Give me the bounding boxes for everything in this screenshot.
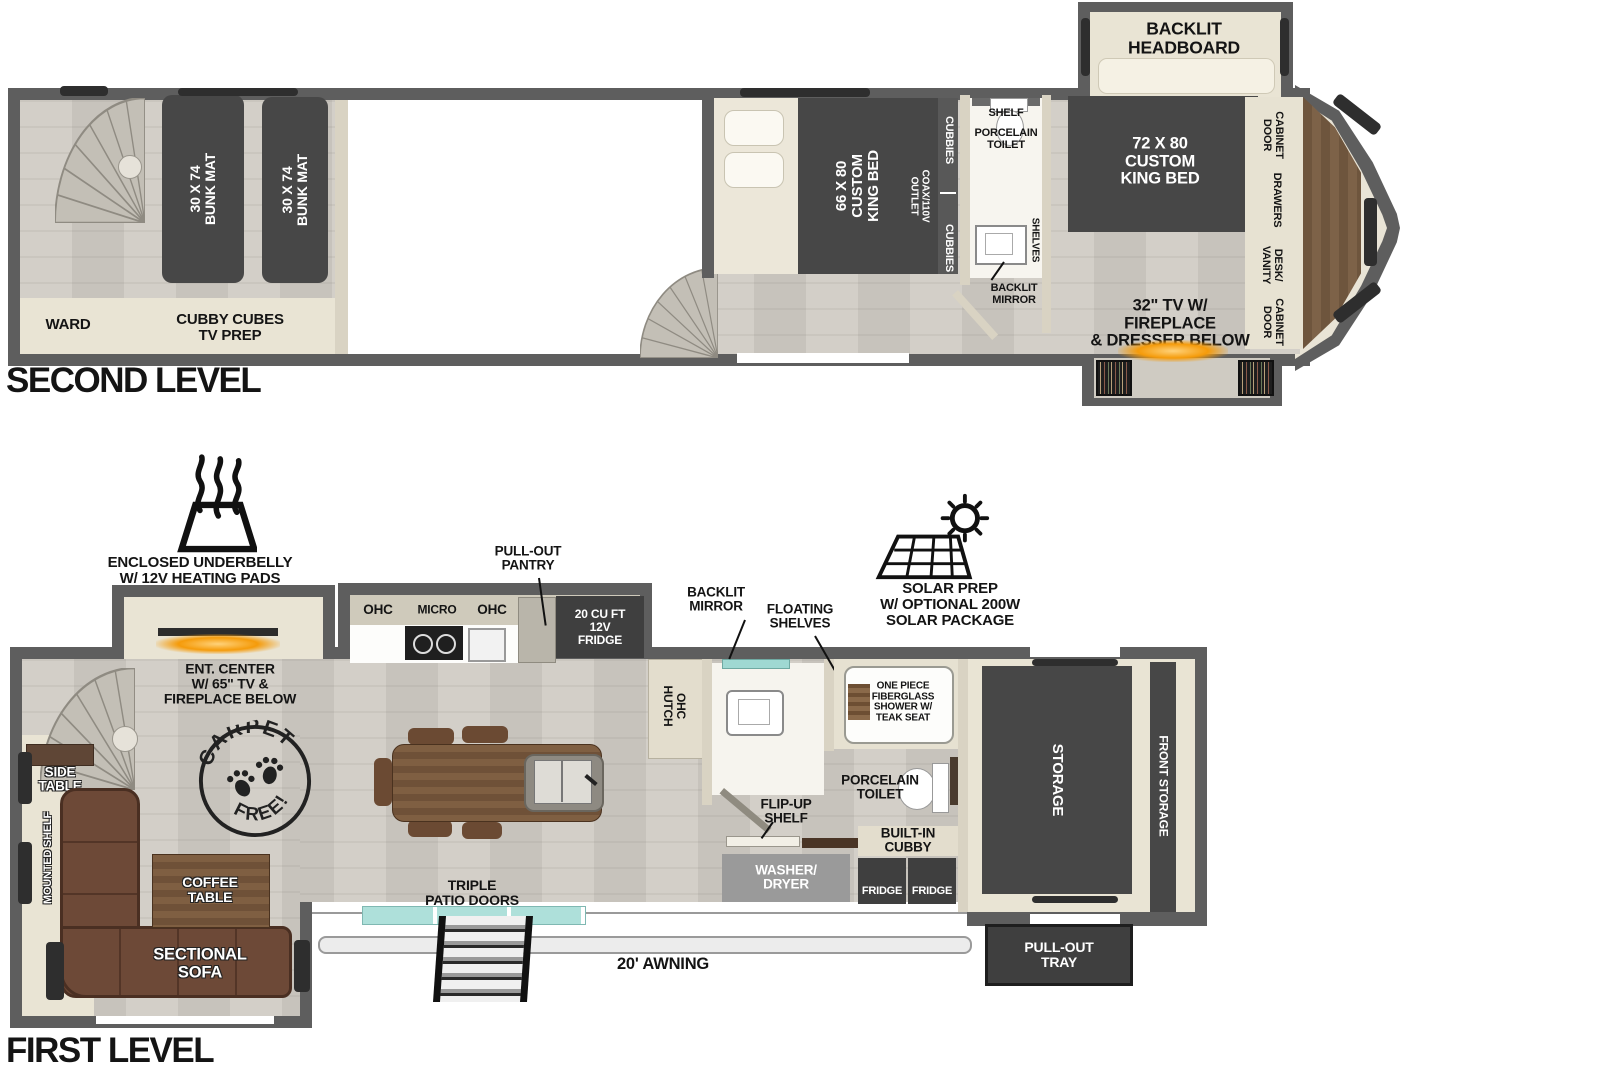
left-window-2	[18, 842, 32, 904]
wardrobe-right	[1238, 360, 1274, 396]
side-table	[26, 744, 94, 766]
mounted-shelf-label: MOUNTED SHELF	[43, 798, 55, 918]
storage-top-opening	[1030, 647, 1120, 657]
fl-stairs-knob	[112, 726, 138, 752]
island-sink-basin	[534, 760, 592, 804]
sectional-sofa-label: SECTIONAL SOFA	[153, 946, 247, 981]
underbelly-label: ENCLOSED UNDERBELLY W/ 12V HEATING PADS	[108, 555, 293, 587]
teak-seat	[848, 684, 870, 720]
built-in-cubby-label: BUILT-IN CUBBY	[881, 827, 935, 856]
ent-center-label: ENT. CENTER W/ 65" TV & FIREPLACE BELOW	[164, 662, 296, 707]
cooktop-burner-2	[436, 634, 456, 654]
left-window-1	[18, 752, 32, 804]
island-sink-divider	[561, 760, 563, 802]
sl-bath-right-wall	[1042, 95, 1051, 333]
storage-bottom-opening	[1030, 914, 1120, 924]
wardrobe-left	[1096, 360, 1132, 396]
dining-chair-top-1	[408, 728, 454, 745]
ward-label: WARD	[45, 317, 90, 333]
floorplan-canvas: 30 X 74 BUNK MAT 30 X 74 BUNK MAT WARD C…	[0, 0, 1600, 1079]
dining-chair-bottom-1	[408, 820, 452, 837]
micro-label: MICRO	[418, 604, 457, 617]
storage-top-slat	[1032, 659, 1118, 666]
ohc-left-label: OHC	[363, 603, 392, 617]
coffee-table-label: COFFEE TABLE	[182, 875, 238, 905]
sl-bath-left-wall	[960, 95, 970, 285]
bunk-stairs-knob	[118, 155, 142, 179]
cubby-cubes-label: CUBBY CUBES TV PREP	[176, 312, 284, 344]
shower-label: ONE PIECE FIBERGLASS SHOWER W/ TEAK SEAT	[872, 682, 934, 725]
dining-chair-bottom-2	[462, 822, 502, 839]
bunk-room-right-wall	[335, 100, 348, 354]
sl-backlit-mirror-label: BACKLIT MIRROR	[991, 283, 1038, 307]
king-bed-label: 66 X 80 CUSTOM KING BED	[834, 131, 882, 241]
bunk-mat-2-label: 30 X 74 BUNK MAT	[280, 135, 310, 245]
king-room-left-wall	[702, 100, 714, 278]
coax-outlet-label: COAX/110V OUTLET	[908, 160, 929, 232]
front-storage-label: FRONT STORAGE	[1157, 721, 1170, 851]
fl-right-wall	[1195, 647, 1207, 926]
pullout-pantry-label: PULL-OUT PANTRY	[495, 545, 562, 574]
cubby-divider	[940, 192, 956, 194]
cubbies-top-label: CUBBIES	[942, 105, 954, 175]
fridge-12v-label: 20 CU FT 12V FRIDGE	[575, 608, 625, 646]
drawers-label: DRAWERS	[1270, 165, 1282, 235]
vanity-mirror	[722, 659, 790, 669]
cubby-shelf	[802, 838, 858, 848]
king-pillow-1	[724, 110, 784, 146]
sl-door-opening	[737, 353, 909, 363]
cubbies-bottom-label: CUBBIES	[942, 213, 954, 283]
first-level-title: FIRST LEVEL	[6, 1032, 213, 1069]
bunk-window-2	[178, 88, 298, 96]
fridge-right-label: FRIDGE	[912, 886, 952, 898]
sl-shelves-label: SHELVES	[1029, 208, 1040, 272]
flip-up-shelf-label: FLIP-UP SHELF	[760, 798, 811, 827]
sofa-window-1	[46, 942, 64, 1000]
kitchen-sink	[468, 628, 506, 662]
pantry-unit	[518, 597, 556, 663]
floating-shelves-label: FLOATING SHELVES	[767, 603, 833, 632]
headboard-pillow	[1098, 58, 1275, 94]
storage-partition	[958, 659, 968, 912]
triple-patio-doors-label: TRIPLE PATIO DOORS	[425, 878, 519, 908]
second-level-title: SECOND LEVEL	[6, 362, 260, 399]
bunk-mat-1-label: 30 X 74 BUNK MAT	[188, 134, 218, 244]
towel-bar	[950, 757, 958, 805]
cooktop-burner-1	[413, 634, 433, 654]
heated-underbelly-icon	[165, 452, 257, 556]
fl-toilet-label: PORCELAIN TOILET	[841, 774, 919, 803]
sl-bath-sink-basin	[985, 233, 1013, 255]
fl-toilet-tank	[932, 763, 949, 813]
headboard-window-left	[1081, 18, 1090, 76]
fl-backlit-mirror-label: BACKLIT MIRROR	[687, 586, 745, 615]
entry-steps	[433, 916, 533, 1002]
awning-label: 20' AWNING	[617, 956, 709, 974]
sl-shelf-label: SHELF	[988, 108, 1023, 120]
sl-left-wall	[8, 88, 20, 366]
shelves-partition	[824, 659, 834, 751]
fl-left-wall	[10, 647, 22, 1028]
cabinet-door-top-label: CABINET DOOR	[1260, 100, 1284, 170]
fridge-left-label: FRIDGE	[862, 886, 902, 898]
pull-out-tray-label: PULL-OUT TRAY	[1024, 940, 1093, 970]
washer-dryer-label: WASHER/ DRYER	[755, 864, 817, 893]
awning-bar	[318, 936, 972, 954]
ohc-right-label: OHC	[477, 603, 506, 617]
king-window	[740, 88, 870, 97]
sl-toilet-label: PORCELAIN TOILET	[975, 128, 1038, 152]
master-bed-label: 72 X 80 CUSTOM KING BED	[1120, 136, 1199, 189]
king-pillow-2	[724, 152, 784, 188]
storage-bottom-slat	[1032, 896, 1118, 903]
solar-prep-label: SOLAR PREP W/ OPTIONAL 200W SOLAR PACKAG…	[880, 581, 1020, 629]
cap-window-mid	[1364, 198, 1377, 266]
dining-chair-left	[374, 758, 392, 806]
cabinet-door-bottom-label: CABINET DOOR	[1260, 287, 1284, 357]
master-fireplace-glow	[1118, 340, 1228, 362]
solar-prep-icon	[872, 492, 990, 584]
bunk-window-1	[60, 86, 108, 96]
sofa-bottom-sill	[96, 1016, 274, 1024]
ent-fireplace-glow	[156, 634, 280, 654]
loft-stairs-icon	[640, 268, 718, 358]
bath-left-wall	[702, 659, 712, 805]
bath-sink-basin	[738, 699, 770, 725]
headboard-window-right	[1280, 18, 1289, 76]
sofa-window-2	[294, 940, 310, 992]
dining-chair-top-2	[462, 726, 508, 743]
backlit-headboard-label: BACKLIT HEADBOARD	[1128, 19, 1240, 56]
storage-label: STORAGE	[1049, 730, 1065, 830]
ohc-hutch-label: OHC HUTCH	[661, 666, 687, 746]
